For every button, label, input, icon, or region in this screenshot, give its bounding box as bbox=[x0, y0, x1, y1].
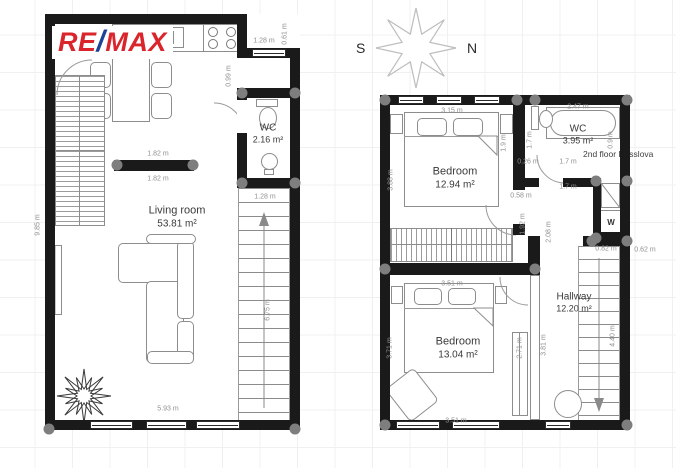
floor-plan-canvas: Living room 53.81 m² WC 2.16 m² bbox=[0, 0, 676, 468]
junction-dot bbox=[622, 420, 633, 431]
dimension-label: 1.28 m bbox=[253, 38, 274, 45]
nightstand bbox=[495, 286, 507, 304]
compass-north-label: N bbox=[467, 40, 477, 56]
stove-burner bbox=[208, 39, 218, 49]
junction-dot bbox=[112, 160, 123, 171]
room-label-wc1: WC 2.16 m² bbox=[253, 122, 284, 147]
dimension-label: 2.08 m bbox=[546, 221, 553, 242]
dimension-label: 3.71 m bbox=[387, 337, 394, 358]
room-name: Living room bbox=[149, 203, 206, 217]
junction-dot bbox=[512, 95, 523, 106]
wall-segment bbox=[620, 95, 630, 430]
room-name: Bedroom bbox=[436, 334, 481, 348]
dimension-label: 0.62 m bbox=[634, 247, 655, 254]
junction-dot bbox=[44, 424, 55, 435]
chair bbox=[151, 62, 172, 88]
window bbox=[545, 421, 571, 429]
junction-dot bbox=[237, 178, 248, 189]
room-name: WC bbox=[253, 122, 284, 135]
room-area: 12.20 m² bbox=[556, 304, 592, 316]
wall-segment bbox=[290, 48, 300, 430]
junction-dot bbox=[290, 178, 301, 189]
partition-wall bbox=[530, 275, 540, 420]
dimension-label: 5.93 m bbox=[157, 406, 178, 413]
pillow bbox=[417, 118, 447, 136]
room-area: 53.81 m² bbox=[149, 218, 206, 231]
toilet-tank bbox=[531, 106, 539, 130]
logo-max: MAX bbox=[105, 27, 167, 57]
wall-segment bbox=[380, 263, 540, 275]
dimension-label: 9.85 m bbox=[35, 214, 42, 235]
chair bbox=[151, 93, 172, 119]
dimension-label: 1.82 m bbox=[147, 176, 168, 183]
door-opening bbox=[237, 100, 247, 133]
dimension-label: 0.26 m bbox=[517, 159, 538, 166]
junction-dot bbox=[591, 176, 602, 187]
floor-note: 2nd floor Resslova bbox=[583, 149, 653, 159]
dimension-label: 6.75 m bbox=[265, 299, 272, 320]
junction-dot bbox=[290, 424, 301, 435]
pillow bbox=[414, 288, 442, 305]
blanket-line bbox=[404, 308, 494, 309]
dimension-label: 1.7 m bbox=[559, 184, 577, 191]
dining-table bbox=[112, 56, 150, 122]
dimension-label: 1.28 m bbox=[254, 194, 275, 201]
junction-dot bbox=[591, 233, 602, 244]
wall-segment bbox=[45, 14, 247, 24]
room-label-bedroom2: Bedroom 13.04 m² bbox=[436, 334, 481, 361]
dimension-label: 1.7 m bbox=[527, 131, 534, 149]
junction-dot bbox=[380, 264, 391, 275]
cabinet bbox=[601, 183, 620, 208]
dimension-label: 1.7 m bbox=[559, 159, 577, 166]
junction-dot bbox=[237, 88, 248, 99]
dimension-label: 0.99 m bbox=[226, 65, 233, 86]
dimension-label: 0.58 m bbox=[510, 193, 531, 200]
nightstand bbox=[390, 114, 403, 134]
sofa-armrest bbox=[147, 351, 194, 364]
blanket-line bbox=[404, 136, 499, 137]
dimension-label: 0.82 m bbox=[595, 246, 616, 253]
room-label-hallway: Hallway 12.20 m² bbox=[556, 291, 592, 316]
half-wall bbox=[114, 160, 194, 171]
window bbox=[474, 96, 500, 104]
dimension-label: 3.88 m bbox=[388, 169, 395, 190]
stove-burner bbox=[226, 27, 236, 37]
room-area: 3.95 m² bbox=[563, 136, 594, 148]
window bbox=[252, 49, 286, 57]
stove-burner bbox=[208, 27, 218, 37]
junction-dot bbox=[530, 95, 541, 106]
room-label-living-room: Living room 53.81 m² bbox=[149, 203, 206, 230]
room-name: Bedroom bbox=[433, 164, 478, 178]
wardrobe-divider bbox=[451, 228, 452, 262]
remax-logo: RE/MAX bbox=[52, 26, 173, 59]
dimension-label: 0.61 m bbox=[282, 23, 289, 44]
stove-burner bbox=[226, 39, 236, 49]
window bbox=[146, 421, 187, 429]
window bbox=[90, 421, 133, 429]
nightstand bbox=[500, 114, 513, 134]
round-column bbox=[554, 390, 582, 418]
dimension-label: 1.82 m bbox=[147, 151, 168, 158]
washing-machine-label: W bbox=[601, 218, 621, 227]
sofa-armrest bbox=[146, 234, 196, 244]
junction-dot bbox=[622, 95, 633, 106]
room-name: WC bbox=[563, 123, 594, 136]
window bbox=[436, 96, 462, 104]
wardrobe bbox=[55, 150, 105, 226]
wall-segment bbox=[45, 14, 55, 430]
logo-re: RE bbox=[58, 27, 97, 57]
room-area: 13.04 m² bbox=[436, 349, 481, 362]
wardrobe bbox=[55, 75, 105, 151]
wall-segment bbox=[525, 178, 539, 187]
toilet-tank bbox=[256, 99, 278, 107]
toilet-bowl bbox=[539, 110, 553, 128]
junction-dot bbox=[380, 420, 391, 431]
dimension-label: 0.9 m bbox=[608, 131, 615, 149]
window bbox=[398, 96, 424, 104]
compass-star-icon bbox=[376, 8, 456, 88]
compass-south-label: S bbox=[356, 40, 365, 56]
dimension-label: 3.51 m bbox=[441, 281, 462, 288]
dimension-label: 3.81 m bbox=[541, 334, 548, 355]
junction-dot bbox=[622, 176, 633, 187]
junction-dot bbox=[530, 264, 541, 275]
wall-segment bbox=[593, 178, 601, 240]
dimension-label: 1.9 m bbox=[501, 134, 508, 152]
washbasin bbox=[261, 153, 278, 170]
room-area: 12.94 m² bbox=[433, 179, 478, 192]
washbasin-pedestal bbox=[264, 169, 274, 175]
room-label-wc2: WC 3.95 m² bbox=[563, 123, 594, 148]
pillow bbox=[453, 118, 483, 136]
dimension-label: 1.92 m bbox=[520, 213, 527, 234]
dimension-label: 3.51 m bbox=[445, 418, 466, 425]
nightstand bbox=[391, 286, 403, 304]
pillow bbox=[448, 288, 476, 305]
dimension-label: 3.15 m bbox=[441, 108, 462, 115]
sofa-chaise bbox=[118, 243, 182, 283]
room-area: 2.16 m² bbox=[253, 135, 284, 147]
window bbox=[396, 421, 440, 429]
dimension-label: 4.40 m bbox=[610, 325, 617, 346]
dimension-label: 2.71 m bbox=[517, 337, 524, 358]
room-name: Hallway bbox=[556, 291, 592, 304]
junction-dot bbox=[622, 236, 633, 247]
junction-dot bbox=[290, 88, 301, 99]
junction-dot bbox=[380, 95, 391, 106]
dimension-label: 2.47 m bbox=[567, 104, 588, 111]
window bbox=[196, 421, 240, 429]
junction-dot bbox=[188, 160, 199, 171]
room-label-bedroom1: Bedroom 12.94 m² bbox=[433, 164, 478, 191]
sofa-back-cushion bbox=[177, 241, 194, 319]
